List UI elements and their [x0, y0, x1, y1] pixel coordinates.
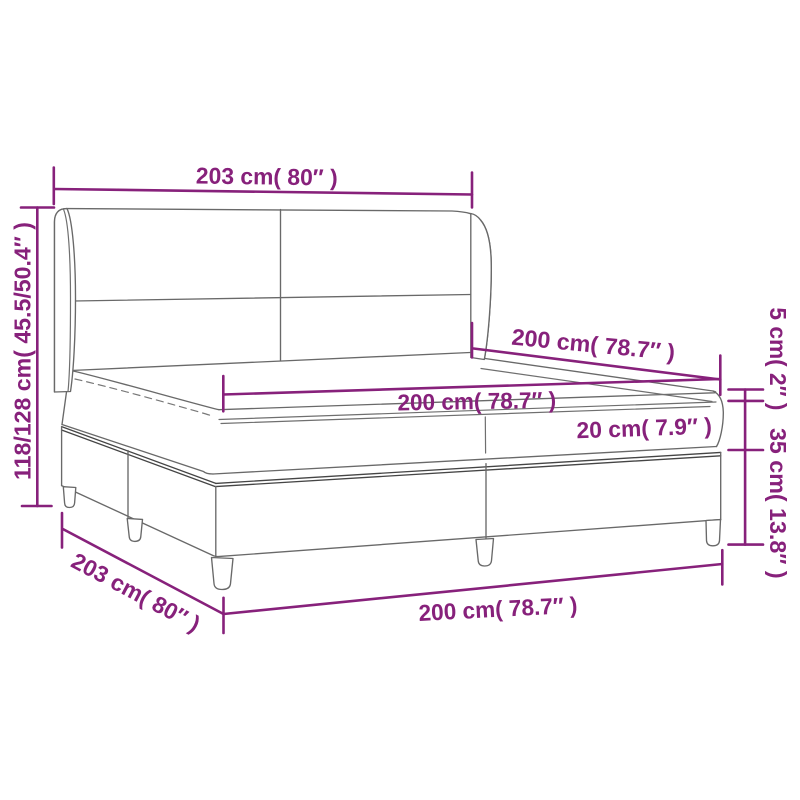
svg-text:118/128 cm( 45.5/50.4″ ): 118/128 cm( 45.5/50.4″ )	[10, 222, 36, 480]
svg-text:20 cm( 7.9″ ): 20 cm( 7.9″ )	[576, 413, 712, 444]
svg-text:5 cm( 2″ ): 5 cm( 2″ )	[765, 307, 791, 410]
svg-text:203 cm( 80″ ): 203 cm( 80″ )	[196, 163, 338, 191]
svg-text:35 cm( 13.8″ ): 35 cm( 13.8″ )	[765, 428, 791, 579]
svg-text:200 cm( 78.7″ ): 200 cm( 78.7″ )	[397, 387, 556, 416]
